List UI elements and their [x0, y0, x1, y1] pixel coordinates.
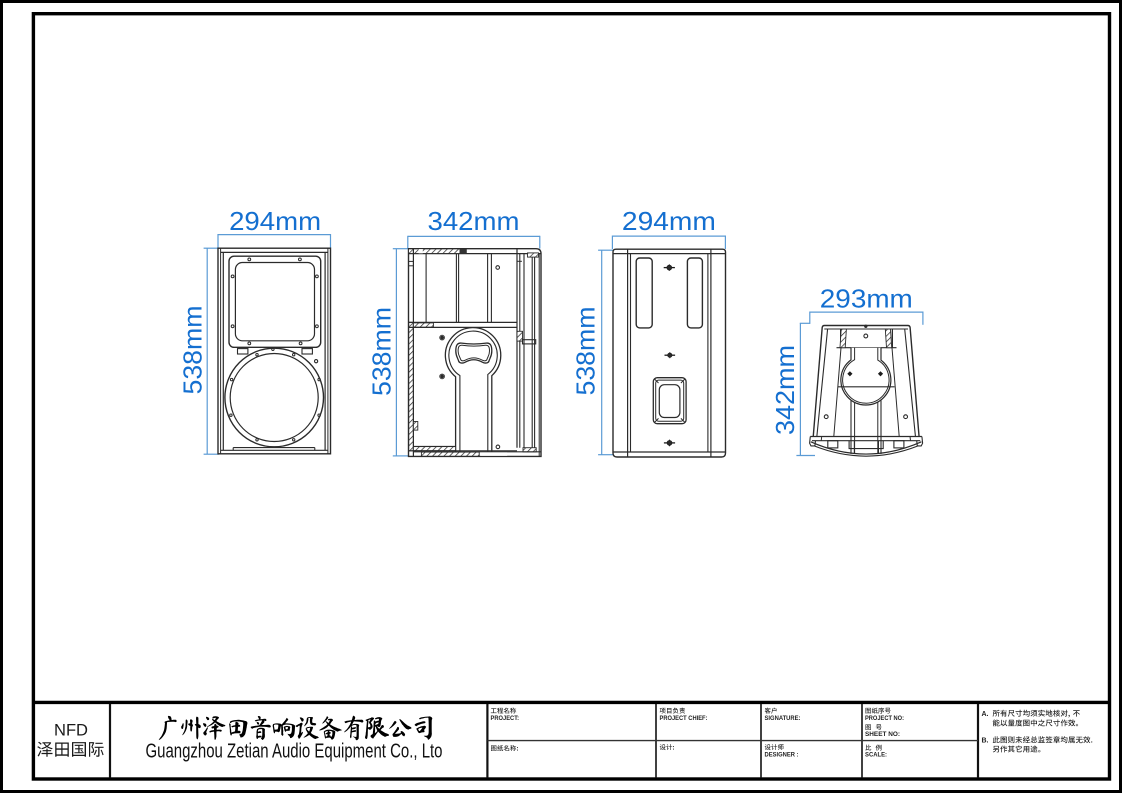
svg-text:SIGNATURE:: SIGNATURE:	[765, 716, 801, 722]
svg-text:PROJECT CHIEF:: PROJECT CHIEF:	[660, 716, 708, 722]
svg-text:A.: A.	[982, 711, 989, 718]
svg-text:294mm: 294mm	[622, 206, 716, 236]
svg-text:538mm: 538mm	[367, 307, 397, 396]
svg-text:293mm: 293mm	[820, 284, 913, 314]
svg-text:PROJECT NO:: PROJECT NO:	[865, 716, 904, 722]
svg-text:SCALE:: SCALE:	[865, 753, 887, 759]
svg-text:538mm: 538mm	[177, 306, 207, 395]
svg-text:Guangzhou Zetian Audio Equipme: Guangzhou Zetian Audio Equipment Co., Lt…	[146, 741, 443, 763]
svg-text:294mm: 294mm	[229, 206, 321, 236]
svg-text:NFD: NFD	[54, 722, 88, 740]
svg-text:DESIGNER :: DESIGNER :	[765, 753, 799, 759]
svg-text:342mm: 342mm	[770, 345, 800, 435]
svg-text:538mm: 538mm	[570, 307, 600, 396]
svg-text:SHEET NO:: SHEET NO:	[865, 732, 900, 738]
svg-text:B.: B.	[982, 738, 989, 745]
svg-text:PROJECT:: PROJECT:	[491, 716, 520, 722]
svg-text:342mm: 342mm	[428, 206, 520, 236]
